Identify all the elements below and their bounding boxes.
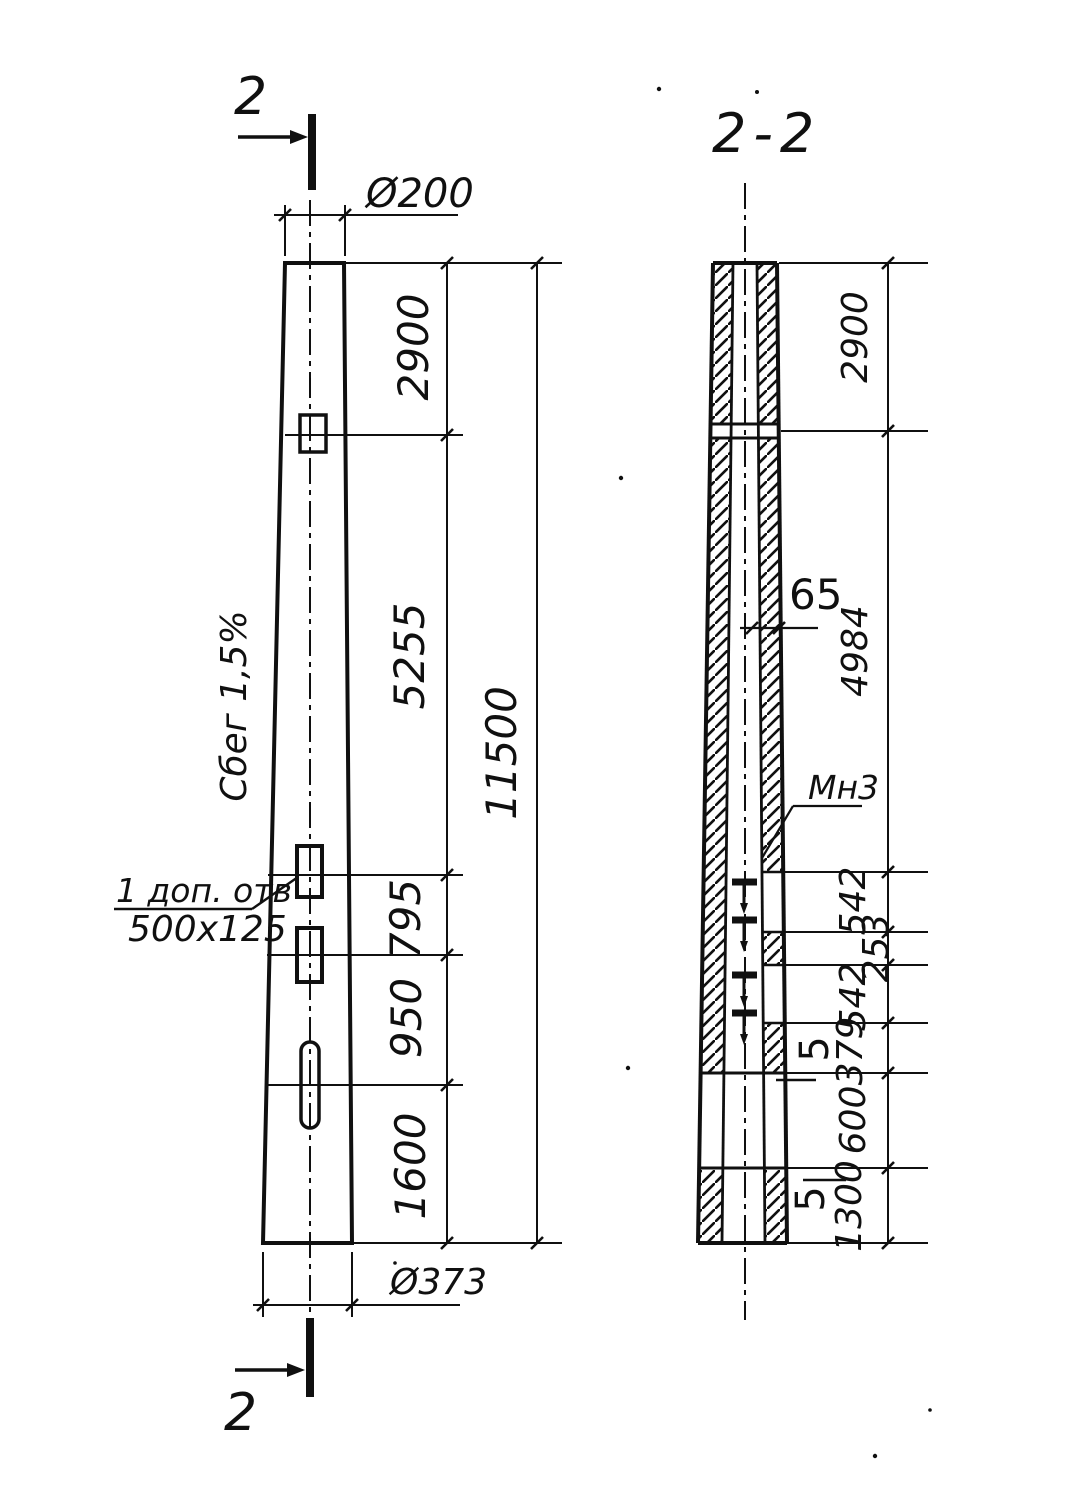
pole-outline	[263, 263, 352, 1243]
hole-top	[300, 415, 326, 452]
pole-drawing: 2 2 Ø200 Ø373 Сбег 1,5% 1 доп. отв 500x1…	[0, 0, 1071, 1488]
embed-label: Мн3	[808, 768, 879, 807]
section-title: 2-2	[712, 102, 821, 165]
front-dim-2900: 2900	[389, 294, 438, 401]
section-dim-600: 600	[833, 1086, 874, 1155]
front-dim-11500: 11500	[477, 686, 526, 820]
front-dim-1600: 1600	[386, 1113, 435, 1220]
dia-bottom-label: Ø373	[388, 1262, 487, 1303]
cut-arrowhead-top	[290, 130, 308, 144]
gap-label-b: 5	[788, 1186, 834, 1211]
section-dim-1300: 1300	[829, 1160, 870, 1252]
hole-note-line1: 1 доп. отв	[116, 871, 292, 910]
cut-arrowhead-bottom	[287, 1363, 305, 1377]
section-dim-2900: 2900	[835, 291, 876, 383]
drawing-sheet: 2 2 Ø200 Ø373 Сбег 1,5% 1 доп. отв 500x1…	[0, 0, 1071, 1488]
front-dim-5255: 5255	[385, 603, 434, 710]
front-dim-795: 795	[381, 879, 430, 959]
front-dim-950: 950	[382, 978, 431, 1058]
gap-label-a: 5	[792, 1036, 838, 1061]
taper-label: Сбег 1,5%	[214, 610, 255, 801]
dia-top-label: Ø200	[364, 171, 474, 217]
section-view	[698, 183, 928, 1320]
cut-label-top: 2	[234, 67, 267, 127]
section-dim-4984: 4984	[835, 605, 876, 697]
cut-label-bottom: 2	[224, 1383, 257, 1443]
hole-note-line2: 500x125	[128, 909, 287, 950]
